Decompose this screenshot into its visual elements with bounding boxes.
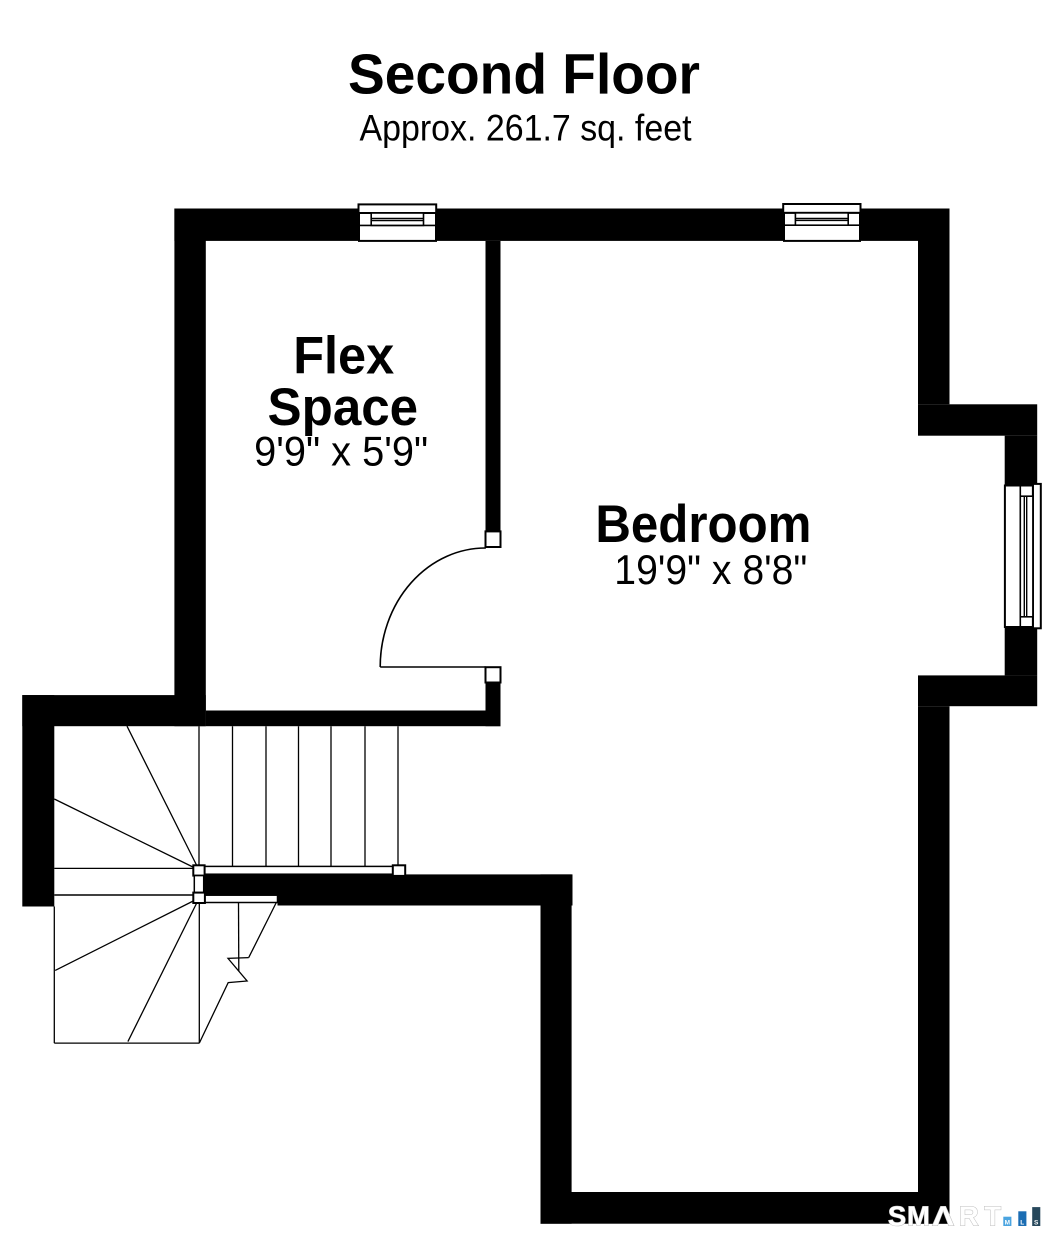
svg-text:M: M [1005,1220,1010,1227]
svg-text:M: M [907,1201,930,1232]
svg-text:Second Floor: Second Floor [348,43,700,107]
svg-text:L: L [1020,1220,1024,1227]
svg-text:T: T [984,1201,1001,1232]
svg-text:9'9" x 5'9": 9'9" x 5'9" [254,428,428,475]
svg-text:Approx. 261.7 sq. feet: Approx. 261.7 sq. feet [360,108,693,149]
svg-text:R: R [959,1201,979,1232]
svg-text:S: S [888,1201,906,1232]
svg-text:Flex: Flex [293,327,394,386]
svg-text:19'9" x 8'8": 19'9" x 8'8" [614,546,807,593]
svg-text:Λ: Λ [932,1201,954,1232]
svg-text:S: S [1034,1220,1039,1227]
